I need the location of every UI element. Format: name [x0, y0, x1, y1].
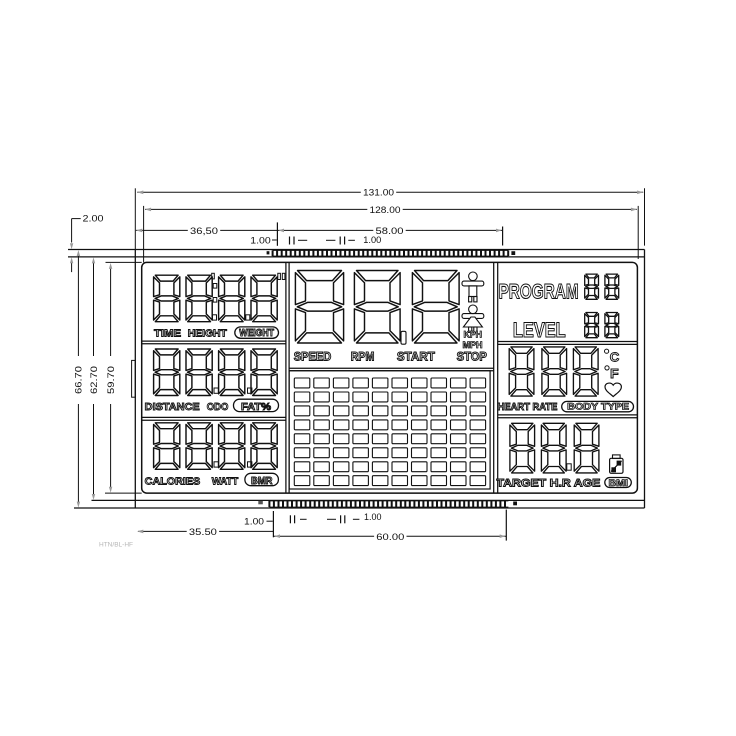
svg-text:HEIGHT: HEIGHT: [188, 327, 228, 339]
svg-text:131.00: 131.00: [363, 188, 394, 198]
svg-text:DISTANCE: DISTANCE: [145, 401, 200, 413]
svg-text:BMR: BMR: [251, 476, 273, 487]
svg-text:TIME: TIME: [154, 327, 181, 339]
svg-text:1.00: 1.00: [364, 512, 382, 522]
svg-text:TARGET H.R AGE: TARGET H.R AGE: [497, 477, 601, 489]
svg-text:60.00: 60.00: [376, 532, 404, 542]
svg-text:36,50: 36,50: [190, 226, 218, 236]
svg-text:START: START: [397, 350, 436, 364]
svg-text:HTN/BL-HF: HTN/BL-HF: [99, 542, 133, 549]
svg-text:RPM: RPM: [351, 350, 375, 364]
svg-text:FAT%: FAT%: [241, 402, 271, 413]
svg-text:35.50: 35.50: [189, 527, 217, 537]
svg-text:2.00: 2.00: [83, 213, 104, 223]
svg-text:KPH: KPH: [464, 330, 483, 340]
svg-text:PROGRAM: PROGRAM: [499, 279, 579, 303]
svg-text:C: C: [610, 349, 620, 364]
svg-text:STOP: STOP: [457, 350, 487, 364]
svg-text:WEIGHT: WEIGHT: [239, 328, 274, 339]
svg-text:1.00: 1.00: [363, 235, 381, 245]
svg-text:62.70: 62.70: [89, 366, 99, 394]
svg-text:BODY TYPE: BODY TYPE: [567, 402, 629, 413]
svg-text:CALORIES: CALORIES: [145, 475, 201, 487]
svg-text:WATT: WATT: [212, 475, 239, 487]
svg-text:MPH: MPH: [463, 340, 483, 350]
svg-text:1.00: 1.00: [244, 517, 264, 527]
svg-text:HEART RATE: HEART RATE: [498, 402, 558, 413]
svg-text:128.00: 128.00: [370, 205, 401, 215]
svg-text:F: F: [610, 366, 619, 381]
svg-text:1.00: 1.00: [250, 235, 271, 245]
svg-text:59.70: 59.70: [106, 366, 116, 394]
svg-text:66.70: 66.70: [74, 366, 84, 394]
svg-text:SPEED: SPEED: [294, 350, 332, 364]
svg-text:LEVEL: LEVEL: [513, 318, 566, 342]
svg-text:BMI: BMI: [609, 478, 629, 489]
svg-text:ODO: ODO: [207, 401, 229, 413]
